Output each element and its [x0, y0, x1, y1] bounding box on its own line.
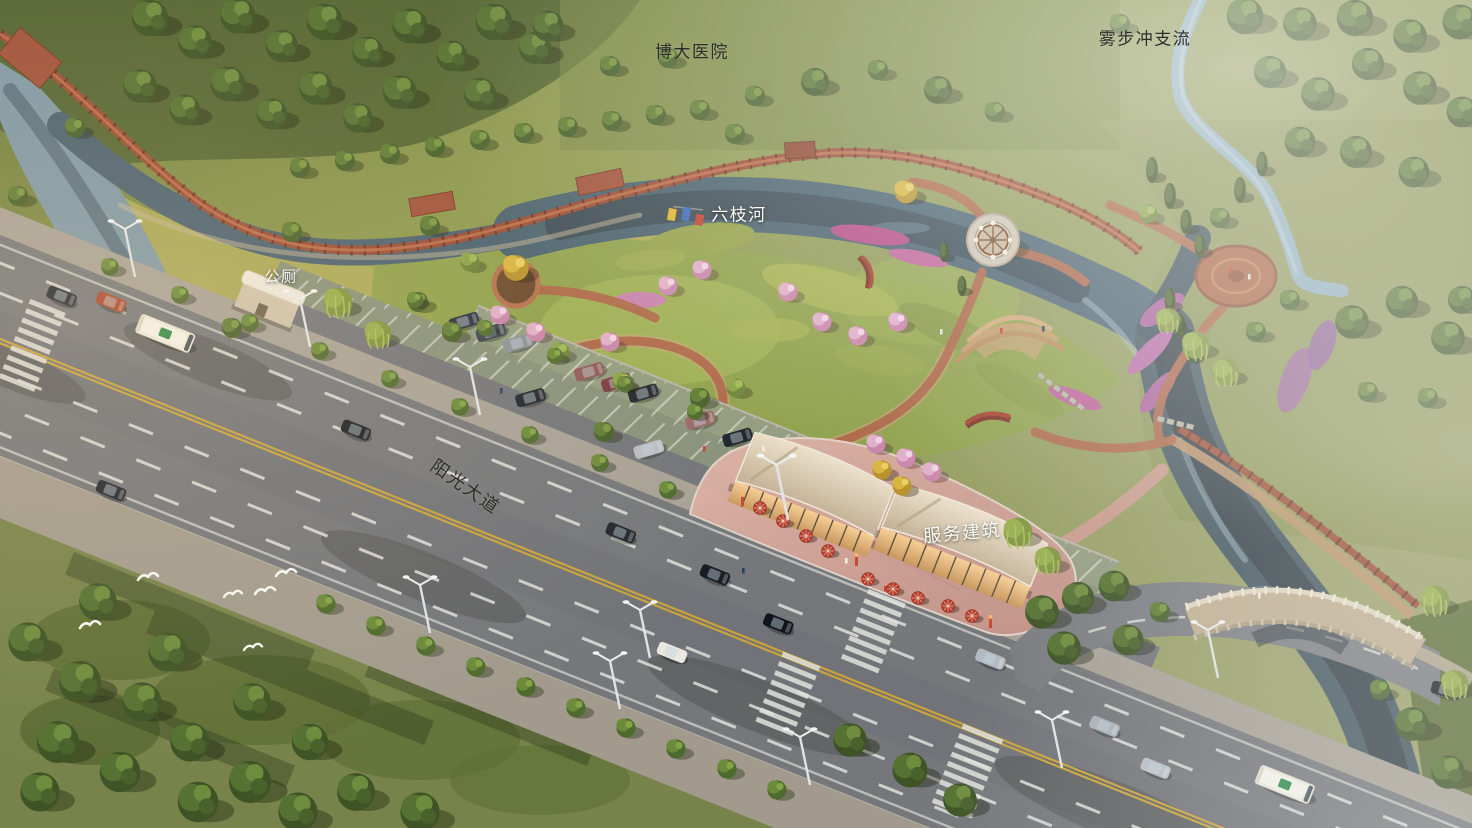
atmosphere-fog — [0, 0, 1472, 828]
park-aerial-rendering: 博大医院 雾步冲支流 六枝河 公厕 阳光大道 服务建筑 — [0, 0, 1472, 828]
rendering-scene — [0, 0, 1472, 828]
